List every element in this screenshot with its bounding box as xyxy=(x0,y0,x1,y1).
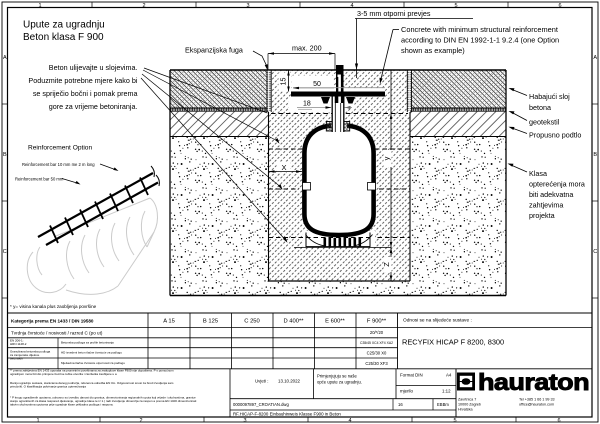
svg-text:Reinforcement Option: Reinforcement Option xyxy=(28,145,92,152)
svg-text:Habajući sloj: Habajući sloj xyxy=(529,92,570,101)
svg-text:takvim okolnostima uputama pri: takvim okolnostima uputama prije ugradnj… xyxy=(10,403,114,407)
svg-text:opće upute za ugradnju.: opće upute za ugradnju. xyxy=(317,380,362,385)
svg-text:zahtjevima: zahtjevima xyxy=(529,201,563,210)
svg-text:Concrete with minimum structur: Concrete with minimum structural reinfor… xyxy=(401,25,558,34)
svg-text:B 125: B 125 xyxy=(203,319,218,325)
svg-text:ugradnjom mora biti dio primje: ugradnjom mora biti dio primjene tlocrtn… xyxy=(10,372,117,376)
svg-text:shown as example): shown as example) xyxy=(401,46,465,55)
svg-text:15: 15 xyxy=(281,78,288,86)
svg-text:Kategorija prema EN 1433 / DIN: Kategorija prema EN 1433 / DIN 19580 xyxy=(11,319,94,324)
svg-text:1: 1 xyxy=(36,418,39,424)
svg-text:EBBm: EBBm xyxy=(437,402,449,407)
svg-text:HD izvedeni beton tlačne čvrst: HD izvedeni beton tlačne čvrstoće za pod… xyxy=(61,351,122,355)
svg-text:5: 5 xyxy=(454,3,457,9)
svg-text:max. 200: max. 200 xyxy=(292,44,322,53)
svg-text:Beton klasa F 900: Beton klasa F 900 xyxy=(23,32,104,43)
svg-text:projekta: projekta xyxy=(529,211,555,220)
svg-text:Klasa: Klasa xyxy=(529,169,547,178)
svg-text:RF.HICAP-F-8200 Einbauhinweis: RF.HICAP-F-8200 Einbauhinweis Klasse F90… xyxy=(233,412,341,417)
svg-text:Zavrtnica 7: Zavrtnica 7 xyxy=(458,398,476,402)
svg-text:Reinforcement bar 10 mm me 2: Reinforcement bar 10 mm me 2 m long xyxy=(22,162,95,167)
svg-text:Primjenjujuju se naše: Primjenjujuju se naše xyxy=(317,374,357,379)
svg-text:priručnikl. O klasifikacija po: priručnikl. O klasifikacija pokrivanje g… xyxy=(10,385,86,389)
svg-text:Reinforcement bar 50 mm: Reinforcement bar 50 mm xyxy=(15,177,64,182)
svg-text:Upute za ugradnju: Upute za ugradnju xyxy=(23,20,105,31)
svg-text:A 15: A 15 xyxy=(163,319,175,325)
svg-text:F 900**: F 900** xyxy=(367,319,387,325)
svg-text:Format DIN: Format DIN xyxy=(400,373,423,378)
svg-text:betonskih: betonskih xyxy=(10,357,23,361)
svg-text:Mješavina tlačne čvrstoće otpo: Mješavina tlačne čvrstoće otpornosti za … xyxy=(61,361,125,365)
svg-text:4: 4 xyxy=(348,418,351,424)
svg-text:6: 6 xyxy=(557,418,560,424)
svg-text:* y= visina kanala plus zaoblj: * y= visina kanala plus zaobljenja površ… xyxy=(10,304,97,309)
svg-text:Beton ulijevajte u slojevima.: Beton ulijevajte u slojevima. xyxy=(49,63,138,72)
svg-text:C: C xyxy=(3,249,7,255)
svg-text:according to DIN EN 1992-1-1 9: according to DIN EN 1992-1-1 9.2.4 (one … xyxy=(401,36,559,45)
svg-text:6: 6 xyxy=(558,3,561,9)
svg-text:X: X xyxy=(281,163,286,172)
svg-text:13.10.2022: 13.10.2022 xyxy=(278,379,301,384)
svg-text:1:12: 1:12 xyxy=(442,389,451,394)
svg-text:mjerilo: mjerilo xyxy=(400,389,413,394)
svg-text:C35/45 XC4 XF4 XA2: C35/45 XC4 XF4 XA2 xyxy=(360,341,393,345)
svg-text:Odnosi se na slijedeće sustave: Odnosi se na slijedeće sustave : xyxy=(403,318,472,324)
svg-text:se spriječio bočni i pomak pre: se spriječio bočni i pomak prema xyxy=(33,89,138,98)
svg-text:E 600**: E 600** xyxy=(325,319,345,325)
svg-text:biti adekvatna: biti adekvatna xyxy=(529,190,573,199)
svg-text:Poduzmite potrebne mjere kako: Poduzmite potrebne mjere kako bi xyxy=(28,76,137,85)
svg-text:gore za vrijeme betoniranja.: gore za vrijeme betoniranja. xyxy=(49,102,138,111)
svg-text:3: 3 xyxy=(243,418,246,424)
svg-text:office@hauraton.com: office@hauraton.com xyxy=(519,403,554,407)
svg-text:betona: betona xyxy=(529,103,551,112)
svg-text:y: y xyxy=(382,156,391,160)
svg-text:hauraton: hauraton xyxy=(478,369,589,395)
svg-text:4: 4 xyxy=(350,3,353,9)
svg-text:A: A xyxy=(3,55,7,61)
svg-text:A4: A4 xyxy=(446,373,452,378)
svg-text:HRN 1128-2: HRN 1128-2 xyxy=(10,342,27,346)
svg-text:Uvjeti :: Uvjeti : xyxy=(255,379,268,384)
svg-text:20/*/20: 20/*/20 xyxy=(370,330,384,335)
svg-text:A: A xyxy=(593,55,597,61)
svg-text:Z: Z xyxy=(382,262,391,267)
svg-text:Betonska podloga za profile be: Betonska podloga za profile betoniranja xyxy=(61,341,114,345)
svg-text:C: C xyxy=(593,249,597,255)
svg-text:C25/30 X0: C25/30 X0 xyxy=(367,351,387,356)
svg-text:B: B xyxy=(3,152,7,158)
svg-text:opterećenja mora: opterećenja mora xyxy=(529,180,585,189)
svg-text:Tvrdnja čvrstoće / nosivosti /: Tvrdnja čvrstoće / nosivosti / razred C … xyxy=(11,331,103,336)
svg-text:5: 5 xyxy=(453,418,456,424)
svg-text:C25/30 XF3: C25/30 XF3 xyxy=(365,361,388,366)
svg-text:18: 18 xyxy=(303,101,311,108)
svg-text:RECYFIX HICAP F 8200, 8300: RECYFIX HICAP F 8200, 8300 xyxy=(402,338,504,347)
svg-text:C 250: C 250 xyxy=(244,319,259,325)
svg-text:0000097897_CROATIAN.dwg: 0000097897_CROATIAN.dwg xyxy=(233,402,289,407)
svg-text:geotekstil: geotekstil xyxy=(529,118,560,127)
svg-text:2: 2 xyxy=(139,418,142,424)
svg-text:Hrvatska: Hrvatska xyxy=(458,408,473,412)
svg-text:Propusno podtlo: Propusno podtlo xyxy=(529,131,581,140)
svg-text:Ekspanzijska fuga: Ekspanzijska fuga xyxy=(185,46,243,55)
svg-text:B: B xyxy=(593,152,597,158)
svg-text:1: 1 xyxy=(38,3,41,9)
svg-text:10000 Zagreb: 10000 Zagreb xyxy=(458,403,481,407)
svg-text:D 400**: D 400** xyxy=(284,319,305,325)
svg-text:3: 3 xyxy=(246,3,249,9)
svg-text:2: 2 xyxy=(142,3,145,9)
svg-text:50: 50 xyxy=(313,81,321,88)
svg-text:16: 16 xyxy=(398,402,403,407)
svg-text:Tel +385 1 66 1 99 33: Tel +385 1 66 1 99 33 xyxy=(519,398,555,402)
svg-text:3-5 mm otporni prevjes: 3-5 mm otporni prevjes xyxy=(357,9,431,18)
